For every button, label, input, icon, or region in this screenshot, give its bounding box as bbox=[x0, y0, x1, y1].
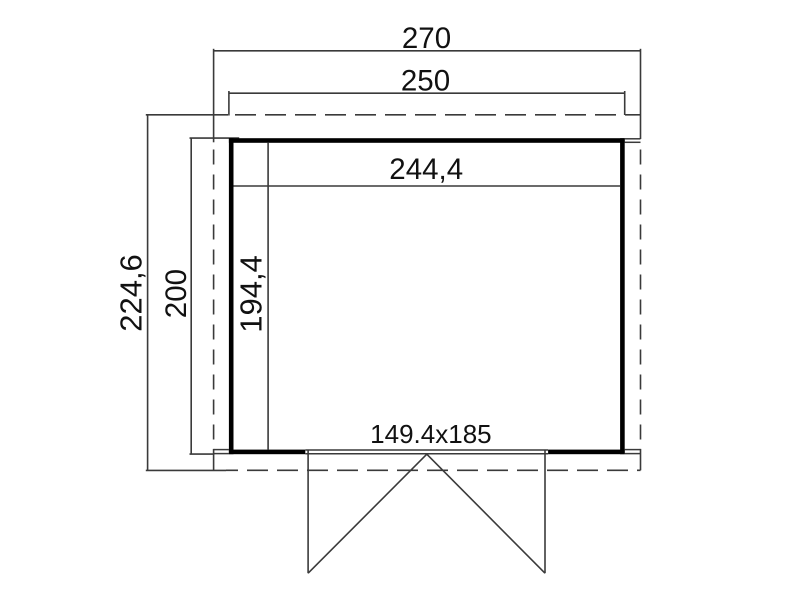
svg-text:270: 270 bbox=[402, 22, 451, 55]
svg-text:244,4: 244,4 bbox=[389, 153, 463, 186]
svg-text:149.4x185: 149.4x185 bbox=[370, 419, 491, 449]
svg-text:250: 250 bbox=[401, 64, 450, 97]
svg-text:224,6: 224,6 bbox=[114, 254, 149, 332]
svg-text:194,4: 194,4 bbox=[234, 255, 269, 333]
svg-text:200: 200 bbox=[160, 269, 193, 318]
